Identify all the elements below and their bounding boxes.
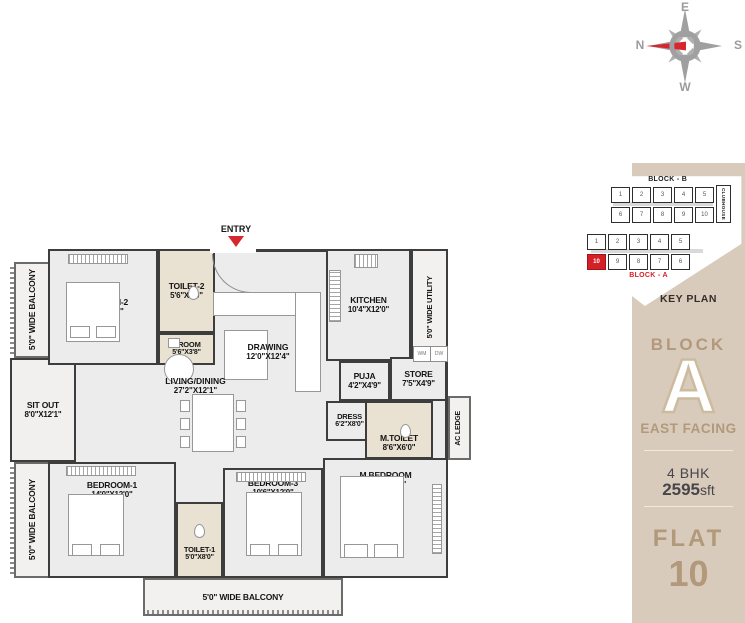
keyplan-unit: 6 xyxy=(671,254,690,270)
balcony-railing xyxy=(10,466,14,574)
bhk-label: 4 BHK xyxy=(632,465,745,481)
area-label: 2595sft xyxy=(632,480,745,500)
balcony-railing xyxy=(147,610,339,614)
keyplan-block-a-row1: 12345 xyxy=(587,234,690,250)
keyplan-unit: 4 xyxy=(650,234,669,250)
pillow-icon xyxy=(278,544,298,556)
room-puja: PUJA 4'2"X4'9" xyxy=(339,361,390,401)
crockery-unit-icon xyxy=(329,270,341,322)
keyplan-unit: 2 xyxy=(608,234,627,250)
compass-letter-south: S xyxy=(730,38,745,52)
keyplan-map: BLOCK - B 12345 678910 CLUBHOUSE 12345 1… xyxy=(563,168,745,306)
washbasin-icon xyxy=(168,338,180,348)
chair-icon xyxy=(180,418,190,430)
pillow-icon xyxy=(70,326,90,338)
keyplan-unit: 6 xyxy=(611,207,630,223)
dining-table-icon xyxy=(192,394,234,452)
keyplan-unit: 9 xyxy=(608,254,627,270)
keyplan-unit: 8 xyxy=(629,254,648,270)
sofa-icon xyxy=(213,292,301,316)
room-toilet1: TOILET-1 5'0"X8'0" xyxy=(176,502,223,578)
compass-rose-icon xyxy=(641,2,729,90)
pillow-icon xyxy=(374,544,398,558)
pillow-icon xyxy=(72,544,92,556)
washing-machine-box: WM xyxy=(413,346,431,362)
keyplan-unit: 7 xyxy=(650,254,669,270)
entry-label: ENTRY xyxy=(204,224,268,234)
keyplan-block-a-label: BLOCK - A xyxy=(603,272,694,279)
compass-letter-west: W xyxy=(677,80,693,94)
entry-door-opening xyxy=(210,247,256,253)
wardrobe-icon xyxy=(66,466,136,476)
chair-icon xyxy=(180,436,190,448)
keyplan-title: KEY PLAN xyxy=(632,293,745,305)
keyplan-unit: 3 xyxy=(653,187,672,203)
room-balcony-bottom-left: 5'0" WIDE BALCONY xyxy=(14,462,50,578)
area-value: 2595 xyxy=(662,480,700,499)
pillow-icon xyxy=(250,544,270,556)
room-toilet2: TOILET-2 5'6"X8'0" xyxy=(158,249,215,333)
keyplan-unit: 7 xyxy=(632,207,651,223)
keyplan-unit: 3 xyxy=(629,234,648,250)
compass-letter-north: N xyxy=(632,38,648,52)
keyplan-unit: 8 xyxy=(653,207,672,223)
keyplan-unit: 2 xyxy=(632,187,651,203)
room-store: STORE 7'5"X4'9" xyxy=(390,357,447,401)
keyplan-unit: 1 xyxy=(587,234,606,250)
pillow-icon xyxy=(96,326,116,338)
keyplan-clubhouse: CLUBHOUSE xyxy=(716,185,731,223)
flat-label: FLAT xyxy=(632,525,745,553)
keyplan-unit: 9 xyxy=(674,207,693,223)
keyplan-unit: 5 xyxy=(695,187,714,203)
keyplan-unit: 4 xyxy=(674,187,693,203)
room-mtoilet: M.TOILET 8'6"X6'0" xyxy=(365,401,433,459)
area-unit: sft xyxy=(700,482,715,498)
chair-icon xyxy=(236,418,246,430)
balcony-railing xyxy=(10,266,14,354)
chair-icon xyxy=(236,436,246,448)
dishwasher-box: DW xyxy=(430,346,448,362)
keyplan-block-b-row2: 678910 xyxy=(611,207,714,223)
keyplan-block-a-row2: 109876 xyxy=(587,254,690,270)
divider xyxy=(644,450,733,451)
wc-icon xyxy=(194,524,205,538)
wc-icon xyxy=(188,286,199,300)
compass-letter-east: E xyxy=(677,0,693,14)
wardrobe-icon xyxy=(432,484,442,554)
room-acledge: AC LEDGE xyxy=(448,396,471,460)
keyplan-block-b-row1: 12345 xyxy=(611,187,714,203)
pillow-icon xyxy=(100,544,120,556)
divider xyxy=(644,506,733,507)
block-letter: A xyxy=(632,349,745,425)
room-drawing: DRAWING 12'0"X12'4" xyxy=(223,342,313,362)
entry-arrow-icon xyxy=(228,236,244,247)
wardrobe-icon xyxy=(236,472,306,482)
keyplan-unit: 5 xyxy=(671,234,690,250)
keyplan-unit: 10 xyxy=(695,207,714,223)
hob-icon xyxy=(354,254,378,268)
flat-number: 10 xyxy=(632,553,745,595)
chair-icon xyxy=(180,400,190,412)
wardrobe-icon xyxy=(68,254,128,264)
keyplan-unit: 1 xyxy=(611,187,630,203)
keyplan-unit-highlighted: 10 xyxy=(587,254,606,270)
room-living-dining: LIVING/DINING 27'2"X12'1" xyxy=(148,376,243,396)
floor-plan: ENTRY 5'0" WIDE BALCONY SIT OUT 8'0"X12'… xyxy=(8,226,472,620)
room-balcony-top-left: 5'0" WIDE BALCONY xyxy=(14,262,50,358)
chair-icon xyxy=(236,400,246,412)
room-sitout: SIT OUT 8'0"X12'1" xyxy=(10,358,76,462)
wc-icon xyxy=(400,424,411,438)
facing-label: EAST FACING xyxy=(632,421,745,436)
keyplan-block-b-label: BLOCK - B xyxy=(618,176,718,183)
pillow-icon xyxy=(344,544,368,558)
compass-rose: E N S W xyxy=(612,2,745,102)
